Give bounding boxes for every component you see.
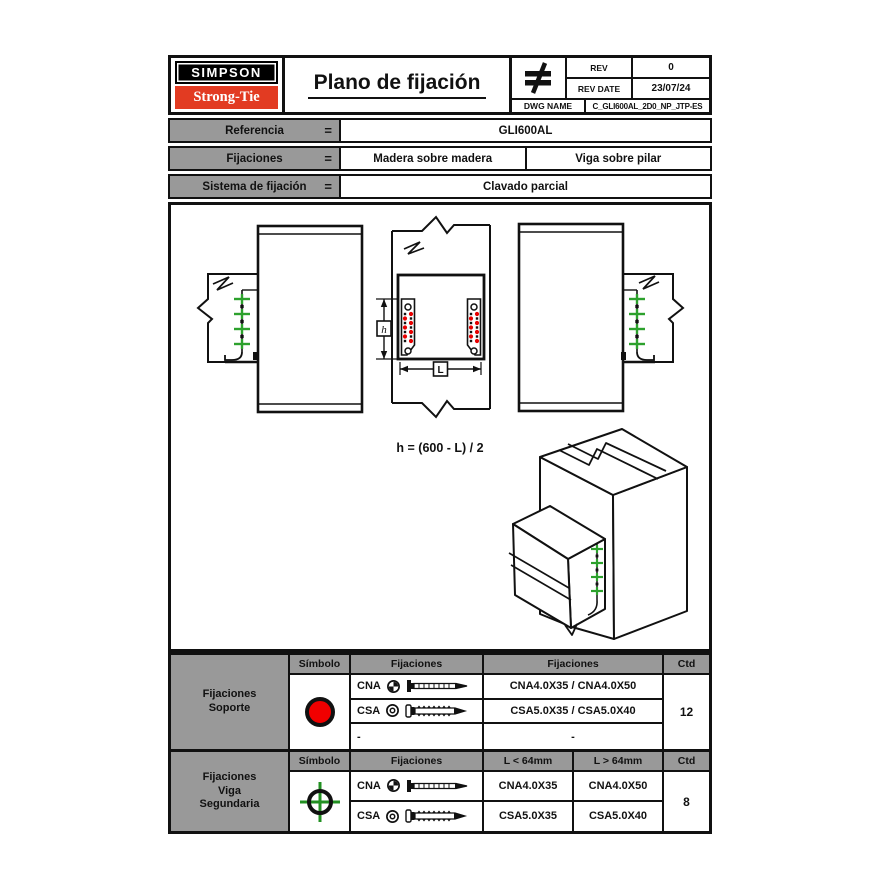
screw-side-icon [405, 808, 469, 824]
fixings-beam-table: Fijaciones Viga Segundaria Símbolo Fijac… [168, 749, 712, 834]
fixings-value-1: Madera sobre madera [341, 148, 525, 169]
beam-table-label: Fijaciones Viga Segundaria [171, 752, 290, 831]
fixing-name-short: CSA5.0X35 [484, 802, 574, 832]
screw-head-icon [385, 703, 400, 718]
column-header-fijaciones: Fijaciones [351, 752, 484, 772]
column-header-simbolo: Símbolo [290, 655, 351, 675]
not-equal-icon [524, 62, 554, 94]
equals-sign: = [324, 123, 332, 138]
table-row-cna: CNA [351, 675, 484, 700]
support-quantity: 12 [664, 675, 709, 749]
page-title: Plano de fijación [308, 71, 487, 99]
break-symbol [404, 242, 424, 254]
view-side-right [519, 224, 683, 411]
rev-date-label: REV DATE [567, 79, 633, 100]
support-table-label: Fijaciones Soporte [171, 655, 290, 749]
fixing-name: CSA5.0X35 / CSA5.0X40 [484, 700, 664, 725]
brand-logo: SIMPSON Strong-Tie [171, 58, 285, 112]
fixings-support-table: Fijaciones Soporte Símbolo Fijaciones Fi… [168, 652, 712, 752]
brand-logo-strongtie: Strong-Tie [175, 86, 278, 109]
column-header-l-gt-64: L > 64mm [574, 752, 664, 772]
fixing-name-long: CSA5.0X40 [574, 802, 664, 832]
fixings-label: Fijaciones [226, 153, 282, 165]
view-side-left [198, 226, 362, 412]
fixings-row: Fijaciones = Madera sobre madera Viga so… [168, 146, 712, 171]
table-row-csa: CSA [351, 802, 484, 832]
svg-text:h: h [381, 324, 387, 336]
dimension-L: L [400, 362, 481, 376]
column-header-l-lt-64: L < 64mm [484, 752, 574, 772]
screw-side-icon [405, 703, 469, 719]
drawing-sheet: SIMPSON Strong-Tie Plano de fijación REV… [168, 55, 712, 834]
brand-logo-simpson: SIMPSON [175, 61, 278, 84]
nail-head-icon [386, 778, 401, 793]
nail-head-icon [386, 679, 401, 694]
fixing-name-empty: - [484, 724, 664, 749]
nail-side-icon [406, 679, 470, 693]
fixing-system-row: Sistema de fijación = Clavado parcial [168, 174, 712, 199]
drawing-area: h L [168, 202, 712, 652]
equals-sign: = [324, 179, 332, 194]
title-block: SIMPSON Strong-Tie Plano de fijación REV… [168, 55, 712, 115]
column-header-ctd: Ctd [664, 752, 709, 772]
column-header-fijaciones: Fijaciones [484, 655, 664, 675]
dimension-h: h [376, 299, 398, 359]
fixing-name-short: CNA4.0X35 [484, 772, 574, 802]
fixing-name: CNA4.0X35 / CNA4.0X50 [484, 675, 664, 700]
fixings-value-2: Viga sobre pilar [525, 148, 711, 169]
rev-date-value: 23/07/24 [633, 79, 709, 100]
crosshair-symbol [297, 780, 343, 824]
dwg-name-label: DWG NAME [512, 100, 586, 112]
reference-value: GLI600AL [341, 120, 710, 141]
drawing-sheet-canvas: SIMPSON Strong-Tie Plano de fijación REV… [0, 0, 880, 880]
column-header-fijaciones: Fijaciones [351, 655, 484, 675]
view-front: h L [376, 217, 490, 417]
svg-text:L: L [437, 365, 443, 376]
fixing-name-long: CNA4.0X50 [574, 772, 664, 802]
rev-value: 0 [633, 58, 709, 79]
reference-row: Referencia = GLI600AL [168, 118, 712, 143]
support-symbol-cell [290, 675, 351, 749]
not-equal-mark-cell [512, 58, 567, 100]
table-row-csa: CSA [351, 700, 484, 725]
height-formula: h = (600 - L) / 2 [396, 441, 483, 455]
screw-head-icon [385, 809, 400, 824]
view-isometric [509, 429, 687, 639]
dwg-name-value: C_GLI600AL_2D0_NP_JTP-ES [586, 100, 709, 112]
table-row-cna: CNA [351, 772, 484, 802]
nail-side-icon [406, 779, 470, 793]
rev-label: REV [567, 58, 633, 79]
table-row-empty: - [351, 724, 484, 749]
revision-block: REV 0 REV DATE 23/07/24 DWG NAME C_GLI60… [512, 58, 709, 112]
fixing-system-value: Clavado parcial [341, 176, 710, 197]
page-title-cell: Plano de fijación [285, 58, 512, 112]
fixing-system-label: Sistema de fijación [202, 181, 306, 193]
red-circle-symbol [305, 697, 335, 727]
beam-quantity: 8 [664, 772, 709, 831]
reference-label: Referencia [225, 125, 284, 137]
technical-drawing: h L [171, 205, 709, 649]
beam-symbol-cell [290, 772, 351, 831]
equals-sign: = [324, 151, 332, 166]
column-header-simbolo: Símbolo [290, 752, 351, 772]
column-header-ctd: Ctd [664, 655, 709, 675]
